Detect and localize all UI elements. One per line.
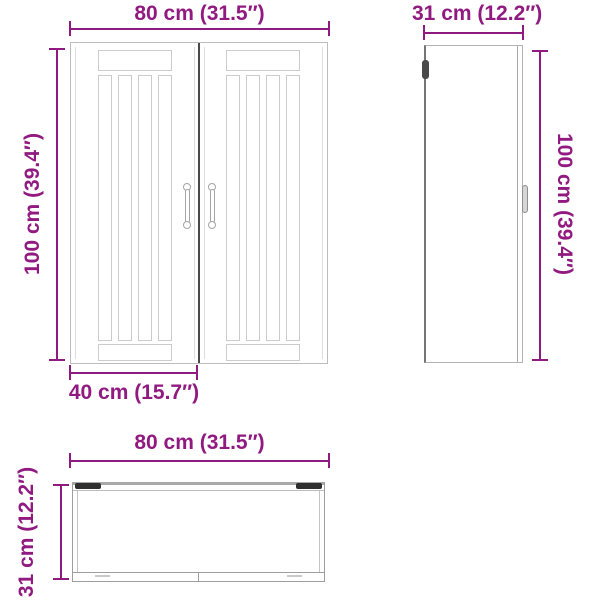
dimension-end-tick (532, 359, 548, 361)
dimension-end-tick (328, 453, 330, 468)
dimension-end-tick (423, 25, 425, 40)
door-slat (138, 75, 152, 341)
dimension-end-tick (53, 578, 69, 580)
door-slat (226, 75, 240, 341)
door-slat (286, 75, 300, 341)
dimension-end-tick (49, 359, 65, 361)
cabinet-front-view (70, 42, 328, 364)
cabinet-side-view (424, 45, 523, 363)
top-view-hinge-plate (95, 575, 110, 577)
top-depth-dimension-label: 31 cm (12.2″) (15, 467, 39, 597)
right-door-top-panel (226, 50, 300, 71)
dimension-end-tick (69, 21, 71, 36)
front-width-dimension-label: 80 cm (31.5″) (70, 2, 329, 26)
left-door-top-panel (98, 50, 172, 71)
door-width-dimension-label: 40 cm (15.7″) (44, 381, 224, 405)
right-door-inner-edge-line (204, 47, 205, 359)
dimension-end-tick (69, 365, 71, 380)
door-slat (246, 75, 260, 341)
top-view-hinge-plate (287, 575, 302, 577)
top-view-back-rail-line (73, 490, 324, 491)
handle-cap (208, 221, 216, 229)
left-door-inner-edge-line (194, 47, 195, 359)
hinge (75, 483, 101, 489)
side-height-dimension-line (539, 50, 541, 361)
handle-bar (185, 189, 190, 223)
right-door-handle (207, 183, 217, 229)
side-width-dimension-label: 31 cm (12.2″) (412, 2, 536, 26)
right-door-edge-line (322, 47, 323, 359)
top-width-dimension-label: 80 cm (31.5″) (70, 431, 329, 455)
top-width-dimension-line (70, 460, 329, 462)
left-door-edge-line (75, 47, 76, 359)
dimension-end-tick (328, 21, 330, 36)
door-slat (118, 75, 132, 341)
cabinet-dimension-diagram: 80 cm (31.5″) 100 cm (39.4″) (0, 0, 600, 600)
door-split-line (198, 43, 200, 363)
dimension-end-tick (522, 25, 524, 40)
dimension-end-tick (196, 365, 198, 380)
dimension-end-tick (532, 50, 548, 52)
dimension-end-tick (53, 484, 69, 486)
wall-mount-bracket (422, 60, 429, 79)
front-width-dimension-line (70, 28, 329, 30)
top-view-side-panel-line (77, 491, 78, 572)
dimension-end-tick (49, 48, 65, 50)
front-height-dimension-label: 100 cm (39.4″) (21, 133, 45, 275)
dimension-end-tick (69, 453, 71, 468)
front-height-dimension-line (56, 48, 58, 361)
side-view-handle (522, 185, 528, 213)
side-door-front-line (517, 46, 518, 362)
left-door-handle (182, 183, 192, 229)
side-width-dimension-line (424, 32, 523, 34)
right-door-bottom-panel (226, 344, 300, 361)
door-width-dimension-line (70, 372, 197, 374)
left-door-bottom-panel (98, 344, 172, 361)
handle-cap (183, 221, 191, 229)
side-height-dimension-label: 100 cm (39.4″) (552, 133, 576, 275)
handle-bar (210, 189, 215, 223)
hinge (296, 483, 322, 489)
top-view-side-panel-line (319, 491, 320, 572)
door-slat (158, 75, 172, 341)
top-view-door-split-line (198, 572, 199, 581)
cabinet-top-view (72, 482, 325, 582)
door-slat (266, 75, 280, 341)
door-slat (98, 75, 112, 341)
top-depth-dimension-line (60, 484, 62, 580)
